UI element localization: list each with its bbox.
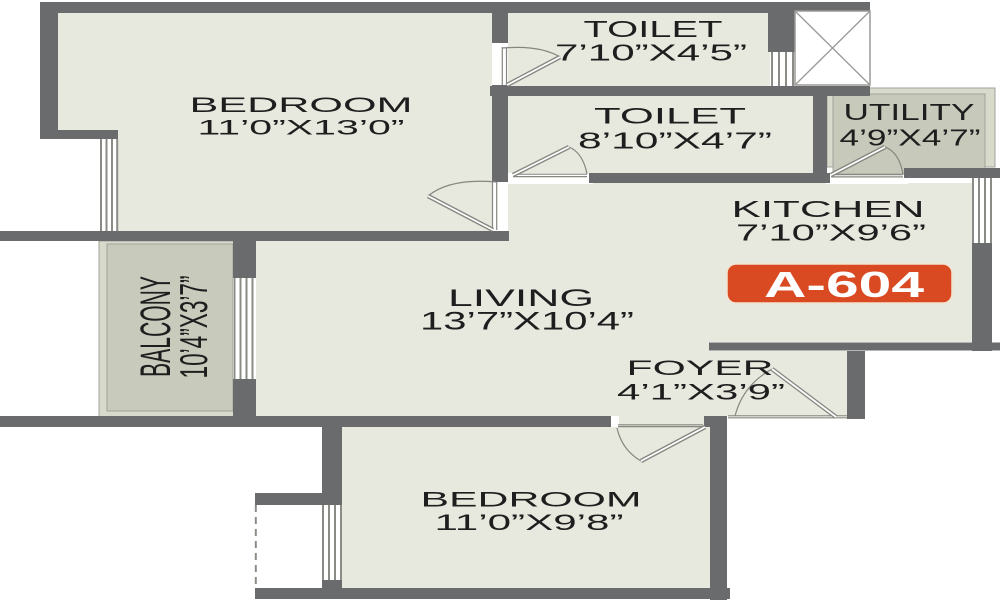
svg-text:UTILITY: UTILITY	[844, 99, 975, 125]
svg-text:KITCHEN: KITCHEN	[732, 196, 925, 222]
svg-text:11’0”X9’8”: 11’0”X9’8”	[435, 510, 624, 535]
svg-text:4’9”X4’7”: 4’9”X4’7”	[840, 125, 981, 151]
svg-text:BEDROOM: BEDROOM	[190, 94, 413, 117]
svg-text:8’10”X4’7”: 8’10”X4’7”	[578, 128, 772, 154]
svg-text:11’0”X13’0”: 11’0”X13’0”	[198, 116, 405, 140]
svg-text:BEDROOM: BEDROOM	[421, 488, 642, 512]
svg-text:TOILET: TOILET	[584, 16, 723, 42]
svg-text:7’10”X4’5”: 7’10”X4’5”	[555, 40, 747, 66]
svg-text:13’7”X10’4”: 13’7”X10’4”	[420, 308, 634, 336]
svg-text:7’10”X9’6”: 7’10”X9’6”	[736, 220, 926, 246]
svg-text:TOILET: TOILET	[594, 104, 746, 129]
svg-text:A-604: A-604	[764, 264, 924, 305]
svg-text:FOYER: FOYER	[627, 357, 774, 380]
svg-text:4’1”X3’9”: 4’1”X3’9”	[617, 380, 785, 405]
svg-text:10’4”X3’7”: 10’4”X3’7”	[173, 276, 216, 379]
